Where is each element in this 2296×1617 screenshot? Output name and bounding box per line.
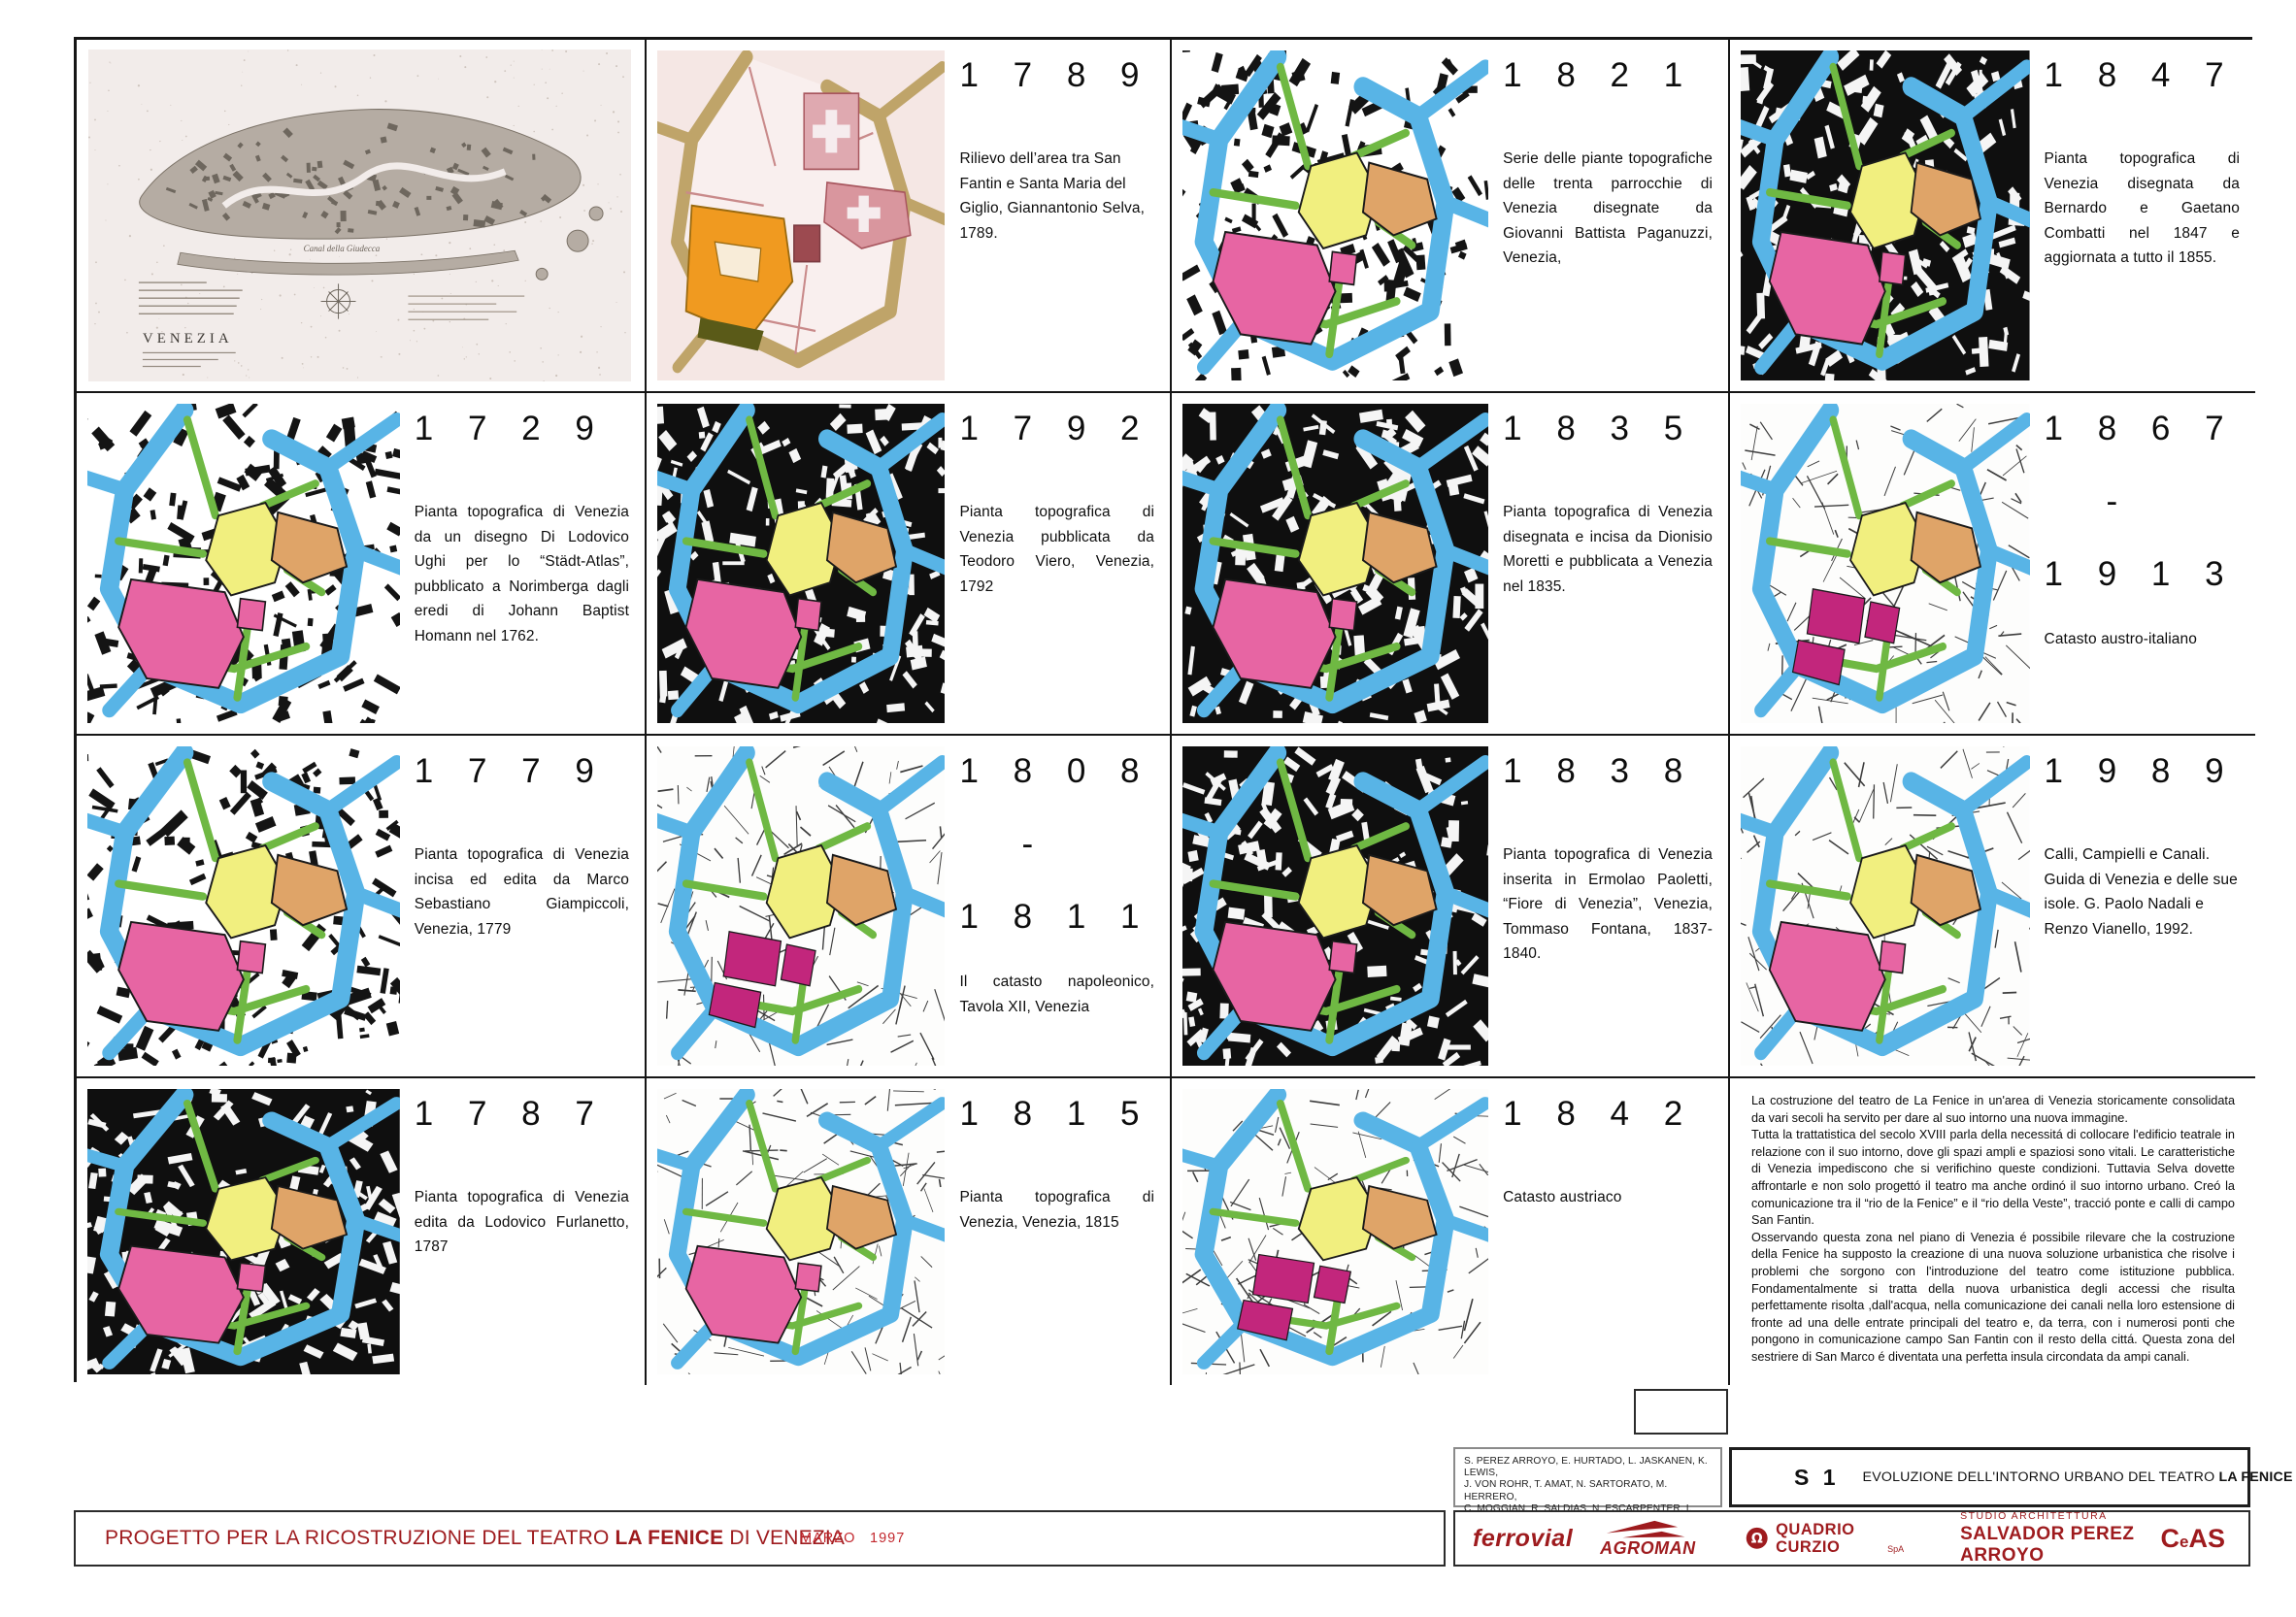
map-image-1815 — [657, 1089, 945, 1374]
map-panel-1779: 1 7 7 9Pianta topografica di Venezia inc… — [77, 736, 647, 1078]
quadrio-spa: SpA — [1887, 1542, 1904, 1556]
map-panel-1729: 1 7 2 9Pianta topografica di Venezia da … — [77, 393, 647, 736]
panel-caption-1729: Pianta topografica di Venezia da un dise… — [415, 500, 629, 648]
panel-year-1867-1913: 1 8 6 7-1 9 1 3 — [2045, 409, 2240, 595]
map-panel-1989: 1 9 8 9Calli, Campielli e Canali. Guida … — [1730, 736, 2255, 1078]
map-image-1842 — [1182, 1089, 1488, 1374]
map-image-1989 — [1741, 746, 2030, 1066]
panel-year-1835: 1 8 3 5 — [1503, 409, 1713, 449]
sheet-code: S 1 — [1794, 1465, 1840, 1491]
project-title: PROGETTO PER LA RICOSTRUZIONE DEL TEATRO… — [105, 1527, 845, 1550]
year-line: 1 7 9 2 — [959, 409, 1154, 449]
year-line: 1 8 3 5 — [1503, 409, 1713, 449]
map-image-1808-1811 — [657, 746, 945, 1066]
agroman-logo: AGROMAN — [1600, 1519, 1696, 1559]
sheet-title-prefix: EVOLUZIONE DELL'INTORNO URBANO DEL TEATR… — [1863, 1469, 2219, 1485]
map-panel-1787: 1 7 8 7Pianta topografica di Venezia edi… — [77, 1078, 647, 1385]
venice-overview-panel: Canal della GiudeccaVENEZIA — [77, 40, 647, 393]
panel-caption-1792: Pianta topografica di Venezia pubblicata… — [959, 500, 1154, 599]
project-title-bar: PROGETTO PER LA RICOSTRUZIONE DEL TEATRO… — [74, 1510, 1446, 1567]
map-panel-1792: 1 7 9 2Pianta topografica di Venezia pub… — [647, 393, 1172, 736]
credits-line: J. VON ROHR, T. AMAT, N. SARTORATO, M. H… — [1464, 1479, 1712, 1502]
map-panel-1838: 1 8 3 8Pianta topografica di Venezia ins… — [1172, 736, 1730, 1078]
essay-text: La costruzione del teatro de La Fenice i… — [1730, 1078, 2255, 1367]
panel-caption-1821: Serie delle piante topografiche delle tr… — [1503, 147, 1713, 271]
sheet-title-box: S 1 EVOLUZIONE DELL'INTORNO URBANO DEL T… — [1729, 1447, 2250, 1507]
map-panel-1789: 1 7 8 9Rilievo dell’area tra San Fantin … — [647, 40, 1172, 393]
year-line: 1 8 3 8 — [1503, 751, 1713, 792]
map-image-1729 — [87, 404, 400, 723]
ceas-e: e — [2180, 1533, 2188, 1552]
year-line: 1 8 2 1 — [1503, 55, 1713, 96]
map-image-1779 — [87, 746, 400, 1066]
panel-caption-1989: Calli, Campielli e Canali. Guida di Vene… — [2045, 842, 2240, 941]
ceas-logo: CeAS — [2161, 1524, 2225, 1554]
panel-year-1787: 1 7 8 7 — [415, 1094, 629, 1135]
agroman-wordmark: AGROMAN — [1600, 1538, 1696, 1559]
panel-text-1815: 1 8 1 5Pianta topografica di Venezia, Ve… — [959, 1094, 1154, 1379]
studio-arroyo-logo: STUDIO ARCHITETTURA SALVADOR PEREZ ARROY… — [1960, 1510, 2160, 1567]
panel-year-1808-1811: 1 8 0 8-1 8 1 1 — [959, 751, 1154, 938]
panel-text-1838: 1 8 3 8Pianta topografica di Venezia ins… — [1503, 751, 1713, 1071]
year-line: 1 7 7 9 — [415, 751, 629, 792]
year-line: 1 8 0 8 — [959, 751, 1154, 792]
maps-grid: Canal della GiudeccaVENEZIA1 7 8 9Riliev… — [74, 37, 2252, 1382]
year-line: 1 7 2 9 — [415, 409, 629, 449]
panel-text-1808-1811: 1 8 0 8-1 8 1 1Il catasto napoleonico, T… — [959, 751, 1154, 1071]
logo-bar: ferrovial AGROMAN Ω QUADRIO CURZIO SpA S… — [1453, 1510, 2250, 1567]
quadrio-wordmark: QUADRIO CURZIO — [1776, 1521, 1883, 1556]
map-panel-1867-1913: 1 8 6 7-1 9 1 3Catasto austro-italiano — [1730, 393, 2255, 736]
salvador-perez-arroyo-label: SALVADOR PEREZ ARROYO — [1960, 1524, 2160, 1567]
ceas-c: C — [2161, 1524, 2180, 1554]
panel-text-1867-1913: 1 8 6 7-1 9 1 3Catasto austro-italiano — [2045, 409, 2240, 728]
map-image-1787 — [87, 1089, 400, 1374]
panel-year-1821: 1 8 2 1 — [1503, 55, 1713, 96]
panel-year-1789: 1 7 8 9 — [959, 55, 1154, 96]
map-panel-1847: 1 8 4 7Pianta topografica di Venezia dis… — [1730, 40, 2255, 393]
panel-text-1842: 1 8 4 2Catasto austriaco — [1503, 1094, 1713, 1379]
sheet-title-bold: LA FENICE — [2218, 1469, 2292, 1485]
map-panel-1821: 1 8 2 1Serie delle piante topografiche d… — [1172, 40, 1730, 393]
map-panel-1835: 1 8 3 5Pianta topografica di Venezia dis… — [1172, 393, 1730, 736]
panel-caption-1789: Rilievo dell’area tra San Fantin e Santa… — [959, 147, 1154, 246]
svg-text:VENEZIA: VENEZIA — [143, 331, 233, 346]
map-image-1835 — [1182, 404, 1488, 723]
panel-caption-1838: Pianta topografica di Venezia inserita i… — [1503, 842, 1713, 967]
panel-text-1847: 1 8 4 7Pianta topografica di Venezia dis… — [2045, 55, 2240, 385]
panel-caption-1815: Pianta topografica di Venezia, Venezia, … — [959, 1185, 1154, 1235]
panel-caption-1787: Pianta topografica di Venezia edita da L… — [415, 1185, 629, 1260]
panel-year-1792: 1 7 9 2 — [959, 409, 1154, 449]
year-line: - — [2045, 481, 2240, 522]
agroman-swoosh-icon — [1603, 1519, 1692, 1540]
year-line: 1 9 8 9 — [2045, 751, 2240, 792]
panel-text-1789: 1 7 8 9Rilievo dell’area tra San Fantin … — [959, 55, 1154, 385]
panel-text-1787: 1 7 8 7Pianta topografica di Venezia edi… — [415, 1094, 629, 1379]
map-image-1821 — [1182, 50, 1488, 380]
panel-year-1815: 1 8 1 5 — [959, 1094, 1154, 1135]
venice-overview-map: Canal della GiudeccaVENEZIA — [88, 49, 631, 381]
map-panel-1842: 1 8 4 2Catasto austriaco — [1172, 1078, 1730, 1385]
sheet-title: EVOLUZIONE DELL'INTORNO URBANO DEL TEATR… — [1863, 1469, 2293, 1485]
year-line: 1 8 6 7 — [2045, 409, 2240, 449]
panel-year-1838: 1 8 3 8 — [1503, 751, 1713, 792]
credits-box: S. PEREZ ARROYO, E. HURTADO, L. JASKANEN… — [1453, 1447, 1722, 1507]
panel-text-1821: 1 8 2 1Serie delle piante topografiche d… — [1503, 55, 1713, 385]
panel-caption-1779: Pianta topografica di Venezia incisa ed … — [415, 842, 629, 941]
panel-text-1835: 1 8 3 5Pianta topografica di Venezia dis… — [1503, 409, 1713, 728]
panel-text-1729: 1 7 2 9Pianta topografica di Venezia da … — [415, 409, 629, 728]
quadrio-omega-icon: Ω — [1745, 1522, 1769, 1556]
panel-year-1847: 1 8 4 7 — [2045, 55, 2240, 96]
year-line: 1 8 1 1 — [959, 897, 1154, 938]
panel-caption-1808-1811: Il catasto napoleonico, Tavola XII, Vene… — [959, 970, 1154, 1019]
panel-caption-1842: Catasto austriaco — [1503, 1185, 1713, 1210]
panel-text-1779: 1 7 7 9Pianta topografica di Venezia inc… — [415, 751, 629, 1071]
year-line: - — [959, 824, 1154, 865]
panel-text-1989: 1 9 8 9Calli, Campielli e Canali. Guida … — [2045, 751, 2240, 1071]
map-image-1792 — [657, 404, 945, 723]
ferrovial-logo: ferrovial — [1473, 1525, 1573, 1553]
panel-year-1779: 1 7 7 9 — [415, 751, 629, 792]
panel-caption-1867-1913: Catasto austro-italiano — [2045, 627, 2240, 652]
year-line: 1 9 1 3 — [2045, 554, 2240, 595]
map-image-1867-1913 — [1741, 404, 2030, 723]
map-panel-1808-1811: 1 8 0 8-1 8 1 1Il catasto napoleonico, T… — [647, 736, 1172, 1078]
empty-stamp-box — [1634, 1389, 1728, 1435]
credits-line: S. PEREZ ARROYO, E. HURTADO, L. JASKANEN… — [1464, 1456, 1712, 1479]
map-image-1838 — [1182, 746, 1488, 1066]
sheet: { "colors": { "border": "#161616", "cana… — [0, 0, 2296, 1617]
year-line: 1 8 4 2 — [1503, 1094, 1713, 1135]
studio-architettura-label: STUDIO ARCHITETTURA — [1960, 1510, 2160, 1522]
panel-year-1729: 1 7 2 9 — [415, 409, 629, 449]
year-line: 1 8 1 5 — [959, 1094, 1154, 1135]
svg-text:Ω: Ω — [1750, 1532, 1762, 1547]
quadrio-curzio-logo: Ω QUADRIO CURZIO SpA — [1745, 1521, 1904, 1556]
year-line: 1 7 8 9 — [959, 55, 1154, 96]
project-title-bold: LA FENICE — [616, 1527, 724, 1549]
panel-text-1792: 1 7 9 2Pianta topografica di Venezia pub… — [959, 409, 1154, 728]
essay-panel: La costruzione del teatro de La Fenice i… — [1730, 1078, 2255, 1385]
panel-caption-1847: Pianta topografica di Venezia disegnata … — [2045, 147, 2240, 271]
panel-caption-1835: Pianta topografica di Venezia disegnata … — [1503, 500, 1713, 599]
panel-year-1989: 1 9 8 9 — [2045, 751, 2240, 792]
year-line: 1 7 8 7 — [415, 1094, 629, 1135]
project-title-prefix: PROGETTO PER LA RICOSTRUZIONE DEL TEATRO — [105, 1527, 616, 1549]
ceas-as: AS — [2188, 1524, 2225, 1554]
date-year: 1997 — [870, 1531, 905, 1546]
map-panel-1815: 1 8 1 5Pianta topografica di Venezia, Ve… — [647, 1078, 1172, 1385]
panel-year-1842: 1 8 4 2 — [1503, 1094, 1713, 1135]
map-image-1789 — [657, 50, 945, 380]
map-image-1847 — [1741, 50, 2030, 380]
date-month: MARZO — [800, 1531, 855, 1546]
svg-text:Canal della Giudecca: Canal della Giudecca — [304, 244, 381, 253]
year-line: 1 8 4 7 — [2045, 55, 2240, 96]
